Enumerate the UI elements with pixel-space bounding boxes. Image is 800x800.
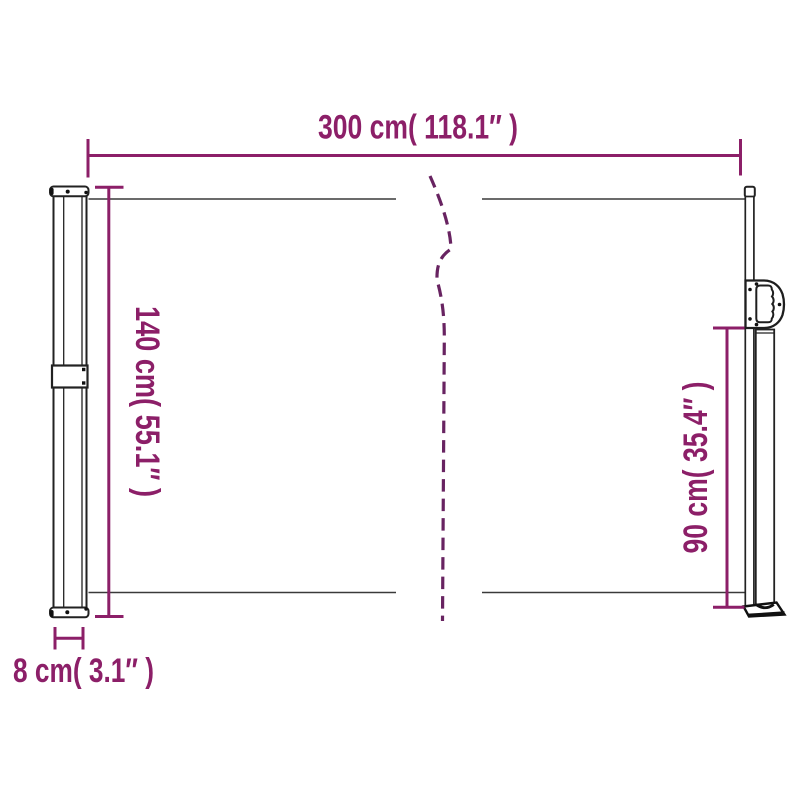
svg-text:90 cm( 35.4″ ): 90 cm( 35.4″ ) (677, 382, 715, 554)
svg-text:140 cm( 55.1″ ): 140 cm( 55.1″ ) (128, 306, 166, 497)
svg-text:300 cm( 118.1″ ): 300 cm( 118.1″ ) (318, 109, 518, 147)
svg-text:8 cm( 3.1″ ): 8 cm( 3.1″ ) (13, 652, 154, 690)
